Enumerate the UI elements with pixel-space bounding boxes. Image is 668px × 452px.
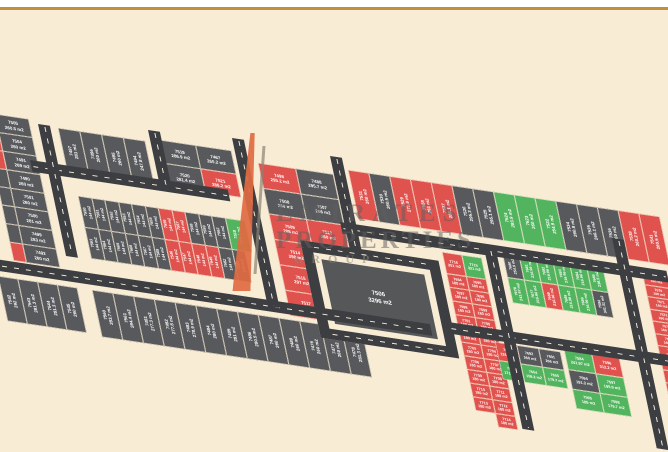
plot-area: 260 m2 [362,189,370,205]
plot-area: 295.7 m2 [308,183,328,191]
plot-area: 295.1 m2 [486,205,495,224]
plot-area: 179.7 m2 [547,377,564,384]
plot-area: 283.7 m2 [105,306,114,325]
plot-area: 260 m2 [272,332,280,348]
plot-area: 298 m2 [288,254,304,261]
plot-area: 286.9 m2 [171,153,191,161]
plot-area: 281 m2 [26,218,42,225]
plot-area: 260 m2 [334,342,342,358]
plot-area: 216.96 m2 [567,290,575,308]
plot-area: 341.31 m2 [601,295,609,313]
plot-area: 180 m2 [492,380,506,386]
plot-area: 238.5 m2 [595,271,603,287]
plot-area: 260 m2 [528,213,536,229]
plot-area: 281 m2 [424,198,432,214]
plot-area: 180 m2 [466,349,480,355]
plot-area: 260.2 m2 [632,227,641,246]
plot-area: 321 m2 [468,266,482,272]
plot-area: 195.9 m2 [603,384,621,391]
plot-area: 254.9 m2 [511,258,519,274]
plot-area: 278.9 m2 [188,318,197,337]
plot-area: 266 m2 [545,358,559,364]
plot-area: 295.2 m2 [270,177,290,185]
plot-area: 180 m2 [454,295,468,301]
plot-area: 281.1 m2 [445,199,454,218]
plot-area: 260.2 m2 [206,158,226,166]
plot-area: 260 m2 [313,339,321,355]
plot-area: 241.97 m2 [517,283,525,301]
plot-area: 158.3 m2 [526,374,543,381]
plot-area: 160 m2 [663,340,668,346]
plot-7714[interactable]: 7714180 m2 [495,413,518,430]
plot-area: 266 m2 [315,208,331,215]
plot-area: 295.3 m2 [465,202,474,221]
plot-area: 271.9 m2 [403,193,412,212]
plot-area: 281.3 m2 [355,343,364,362]
plot-area: 260.8 m2 [569,218,578,237]
plot-area: 260 m2 [293,336,301,352]
gold-border-line [0,7,668,10]
plot-area: 260 m2 [70,301,78,317]
plot-area: 260 m2 [34,255,50,262]
plot-area: 260 m2 [22,199,38,206]
plot-area: 261 m2 [448,263,462,269]
plot-area: 260 m2 [94,147,102,163]
plot-area: 292 m2 [11,293,19,309]
plot-area: 144 m2 [240,259,247,273]
plot-area: 260.1 m2 [590,221,599,240]
plot-area: 281 m2 [230,326,238,342]
plot-area: 180 m2 [457,308,471,314]
plot-area: 260.5 m2 [4,124,24,132]
plot-area: 3296 m2 [368,298,393,309]
plot-area: 280 m2 [210,323,218,339]
plot-area: 281.3 m2 [50,297,59,316]
plot-area: 180 m2 [472,377,486,383]
plot-area: 260 m2 [277,203,293,210]
plot-area: 160 m2 [655,304,668,310]
block-south-row-west: 7542292 m27543281.3 m27544281.3 m2754526… [0,276,87,333]
plot-area: 312.2 m2 [599,365,617,372]
plot-area: 283 m2 [30,236,46,243]
plot-area: 297 m2 [294,279,310,286]
plot-area: 180 m2 [498,407,512,413]
block-dense-strip: 7550144 m27551144 m27552144 m27553144 m2… [78,196,258,284]
plot-area: 180 m2 [500,421,514,427]
plot-area: 284.4 m2 [126,309,135,328]
plot-area: 216.96 m2 [584,293,592,311]
plot-7655[interactable]: 7655179.7 m2 [542,367,568,389]
plot-area: 216.96 m2 [533,285,541,303]
plot-area: 241.97 m2 [570,360,590,367]
plot-area: 180 m2 [477,311,491,317]
plot-area: 281 m2 [72,144,80,160]
plot-area: 179.7 m2 [608,404,626,411]
plot-area: 269 m2 [14,162,30,169]
plot-area: 260 m2 [320,234,336,241]
plot-area: 260 m2 [523,355,537,361]
plot-area: 254.9 m2 [549,215,558,234]
plot-map: 7505260.5 m27504260 m27491269 m27490260 … [0,0,668,452]
plot-area: 180 m2 [452,281,466,287]
plot-area: 185 m2 [582,400,596,407]
plot-area: 216.96 m2 [550,288,558,306]
plot-area: 191.3 m2 [576,380,594,387]
plot-area: 283.9 m2 [507,208,516,227]
plot-area: 277.8 m2 [168,315,177,334]
plot-area: 180 m2 [471,284,485,290]
plot-area: 260 m2 [115,150,123,166]
plot-area: 160 m2 [653,291,666,297]
plot-area: 288 m2 [283,228,299,235]
plot-area: 180 m2 [469,363,483,369]
plot-area: 180 m2 [474,298,488,304]
plot-area: 277.3 m2 [147,312,156,331]
top-margin [0,0,668,7]
plot-7598[interactable]: 7598179.7 m2 [600,393,632,417]
plot-area: 260 m2 [10,143,26,150]
plot-area: 160 m2 [658,316,668,322]
plot-area: 281.3 m2 [30,294,39,313]
plot-area: 280.5 m2 [251,327,260,346]
plot-area: 278.1 m2 [236,227,244,244]
plot-area: 160 m2 [661,328,668,334]
plot-area: 180 m2 [475,390,489,396]
plot-area: 247.8 m2 [137,152,146,171]
plot-area: 260.5 m2 [652,230,661,249]
block-southeast-corner: 7584241.97 m27596312.2 m27594191.3 m2759… [564,350,632,417]
plot-area: 180 m2 [495,393,509,399]
plot-area: 180 m2 [478,404,492,410]
plot-area: 260.5 m2 [382,190,391,209]
plot-area: 260 m2 [18,180,34,187]
